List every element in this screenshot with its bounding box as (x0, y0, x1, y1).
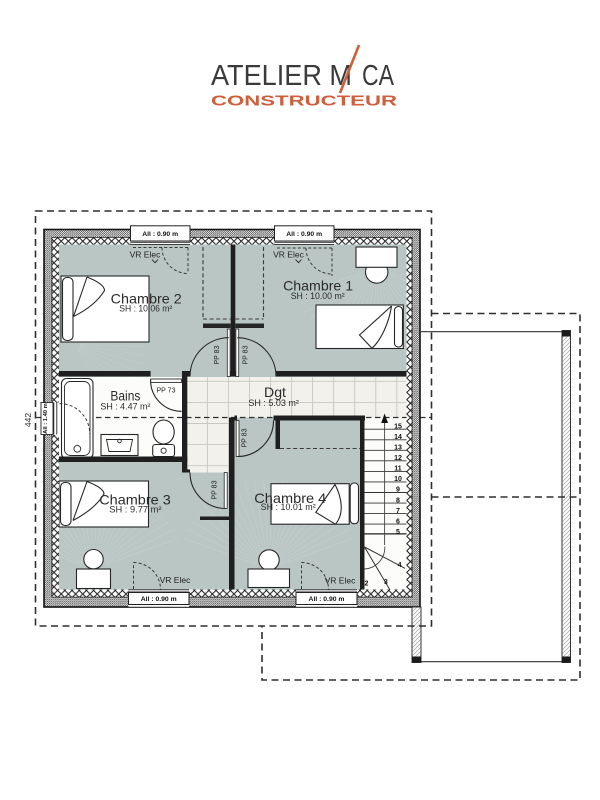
svg-text:PP 83: PP 83 (243, 345, 250, 364)
svg-text:PP 83: PP 83 (214, 345, 221, 364)
svg-text:12: 12 (394, 455, 402, 462)
svg-text:All : 0.90 m: All : 0.90 m (309, 596, 345, 603)
svg-text:VR Elec: VR Elec (325, 576, 356, 586)
svg-text:8: 8 (396, 497, 400, 504)
svg-text:SH : 9.77 m²: SH : 9.77 m² (109, 505, 161, 515)
svg-text:11: 11 (394, 466, 402, 473)
svg-text:6: 6 (396, 518, 400, 525)
svg-text:SH : 10.00 m²: SH : 10.00 m² (291, 291, 345, 301)
svg-text:14: 14 (394, 434, 402, 441)
svg-text:PP 83: PP 83 (212, 480, 219, 499)
svg-text:2: 2 (365, 581, 369, 588)
svg-text:All : 0.90 m: All : 0.90 m (141, 596, 177, 603)
svg-text:ATELIER M: ATELIER M (211, 60, 352, 92)
svg-text:15: 15 (394, 423, 402, 430)
svg-text:VR Elec: VR Elec (273, 250, 304, 260)
svg-text:10: 10 (394, 476, 402, 483)
svg-text:All : 0.90 m: All : 0.90 m (286, 231, 322, 238)
svg-text:5: 5 (396, 529, 400, 536)
svg-text:442: 442 (23, 413, 33, 427)
svg-text:13: 13 (394, 445, 402, 452)
svg-text:All : 1.40 m: All : 1.40 m (43, 403, 49, 434)
svg-text:VR Elec: VR Elec (130, 250, 161, 260)
svg-text:9: 9 (396, 487, 400, 494)
svg-text:CA: CA (362, 60, 395, 92)
svg-text:7: 7 (396, 508, 400, 515)
svg-text:3: 3 (384, 579, 388, 586)
svg-text:PP 73: PP 73 (157, 388, 176, 395)
svg-text:CONSTRUCTEUR: CONSTRUCTEUR (211, 93, 397, 110)
svg-text:All : 0.90 m: All : 0.90 m (142, 231, 178, 238)
svg-text:SH : 5.03 m²: SH : 5.03 m² (248, 398, 299, 408)
svg-text:VR Elec: VR Elec (160, 575, 191, 585)
svg-text:PP 83: PP 83 (242, 428, 249, 447)
svg-text:4: 4 (398, 562, 402, 569)
svg-text:SH : 10.06 m²: SH : 10.06 m² (119, 304, 172, 314)
svg-text:SH : 4.47 m²: SH : 4.47 m² (100, 402, 150, 412)
svg-text:SH : 10.01 m²: SH : 10.01 m² (261, 502, 316, 512)
